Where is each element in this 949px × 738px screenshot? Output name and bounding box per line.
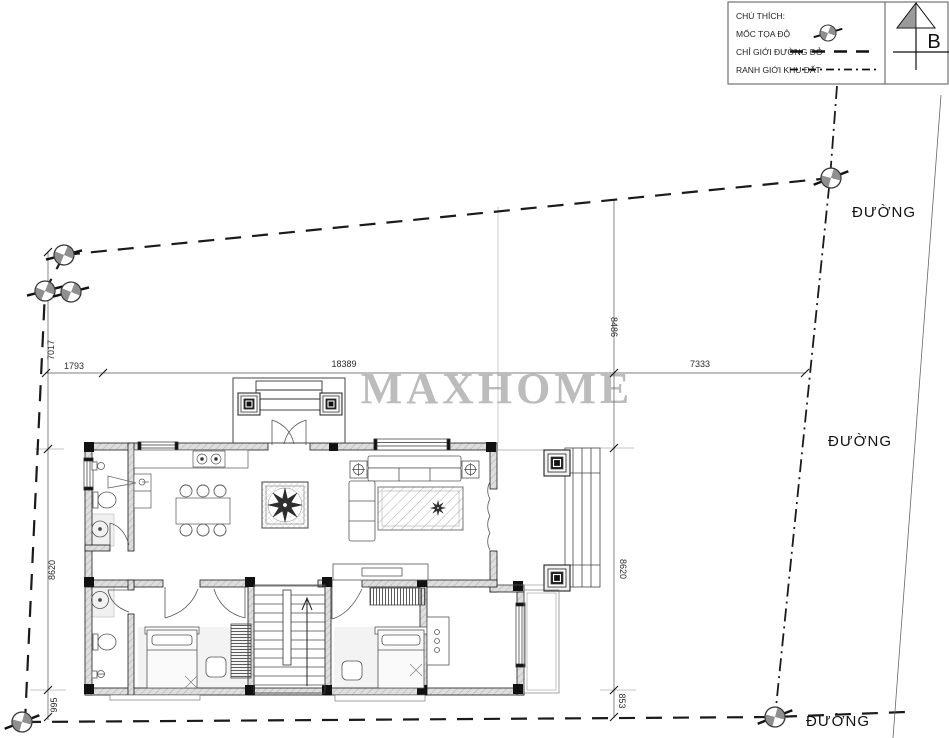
dim-853: 853 <box>617 693 627 708</box>
dim-1793: 1793 <box>64 361 84 371</box>
dim-7333: 7333 <box>690 359 710 369</box>
dim-8620-right: 8620 <box>618 559 628 579</box>
site-plan-drawing: MAXHOME <box>0 0 949 738</box>
road-label-middle: ĐƯỜNG <box>828 433 892 450</box>
carpet <box>378 487 463 530</box>
marker-4 <box>814 163 849 192</box>
bed-2 <box>375 627 427 688</box>
terrace-column-top <box>544 450 570 476</box>
stool-1 <box>206 657 226 677</box>
entrance-portico <box>233 378 345 445</box>
kitchen-sink <box>134 474 151 508</box>
dim-8620-left: 8620 <box>47 560 57 580</box>
side-table-right <box>462 461 479 478</box>
road-label-top: ĐƯỜNG <box>852 204 916 221</box>
rear-step-right <box>335 695 425 701</box>
door-bedroom-2 <box>332 587 362 619</box>
terrace-column-bottom <box>544 565 570 591</box>
window-top <box>138 442 178 451</box>
bay-window <box>374 439 450 450</box>
dim-995: 995 <box>49 697 59 712</box>
kitchen-dining <box>134 450 248 536</box>
sink-bottom <box>92 671 105 679</box>
stool-2 <box>342 661 362 680</box>
north-label: B <box>927 31 940 53</box>
toilet-top <box>93 492 116 508</box>
accordion-door <box>488 482 490 550</box>
legend-item-redline-label: CHỈ GIỚI ĐƯỜNG ĐỎ <box>736 46 823 57</box>
sink-top <box>92 462 105 470</box>
floor-medallion <box>262 482 308 528</box>
dim-8486: 8486 <box>609 317 619 337</box>
watermark-text: MAXHOME <box>361 364 633 413</box>
road-edge <box>893 95 941 738</box>
road-label-bottom: ĐƯỜNG <box>806 713 870 730</box>
rear-terrace-outer <box>524 590 559 693</box>
window-right-lower <box>516 603 525 667</box>
marker-2 <box>27 275 63 307</box>
staircase <box>254 585 325 693</box>
site-plan-canvas: MAXHOME <box>0 0 949 738</box>
bed-1 <box>145 627 199 688</box>
desk <box>427 617 449 665</box>
door-bedroom-1 <box>165 587 198 618</box>
wardrobe-2 <box>370 588 425 605</box>
marker-3 <box>53 276 89 308</box>
living-room <box>333 456 490 580</box>
rear-terrace-inner <box>527 593 556 690</box>
wardrobe-1 <box>231 624 251 678</box>
legend-title: CHÚ THÍCH: <box>736 11 785 21</box>
tv-console <box>333 564 428 580</box>
stove <box>193 451 225 467</box>
door-hall <box>214 587 245 618</box>
portico-column-right <box>320 393 342 415</box>
rear-step-left <box>110 695 200 700</box>
dining-table <box>176 485 230 536</box>
side-table-left <box>350 461 367 478</box>
red-line-boundary-left <box>25 255 64 722</box>
legend-item-marker-label: MỐC TỌA ĐỘ <box>736 28 791 39</box>
dim-7017: 7017 <box>46 340 56 360</box>
kitchen-counter <box>134 450 248 468</box>
marker-1 <box>46 239 82 271</box>
red-line-boundary-top <box>64 178 831 255</box>
portico-column-left <box>238 393 260 415</box>
toilet-bottom <box>93 634 116 650</box>
dim-18389: 18389 <box>331 359 356 369</box>
